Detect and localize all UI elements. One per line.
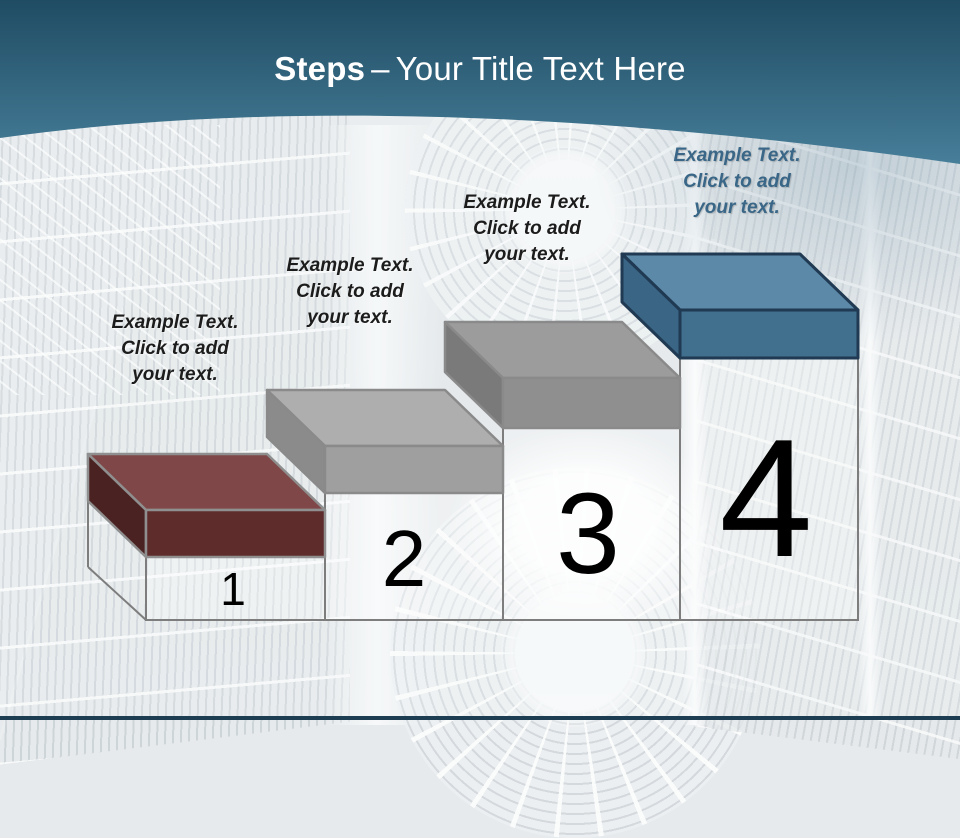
step-4-lid-front <box>680 310 858 358</box>
step-1-pedestal-diagonal-edge <box>88 567 146 620</box>
step-2-label-line: your text. <box>260 305 440 331</box>
step-3-label[interactable]: Example Text. Click to add your text. <box>437 190 617 268</box>
step-1-label-line: Example Text. <box>85 310 265 336</box>
step-3-label-line: your text. <box>437 242 617 268</box>
step-2-label[interactable]: Example Text. Click to add your text. <box>260 253 440 331</box>
step-3-label-line: Example Text. <box>437 190 617 216</box>
step-3-label-line: Click to add <box>437 216 617 242</box>
step-2-label-line: Example Text. <box>260 253 440 279</box>
step-1-group: 1 <box>88 454 325 620</box>
step-1-label-line: Click to add <box>85 336 265 362</box>
step-4-label-line: Click to add <box>647 169 827 195</box>
step-4-label-line: Example Text. <box>647 143 827 169</box>
step-1-label[interactable]: Example Text. Click to add your text. <box>85 310 265 388</box>
footer-bar <box>0 716 960 720</box>
step-4-number: 4 <box>719 404 812 592</box>
step-4-label[interactable]: Example Text. Click to add your text. <box>647 143 827 221</box>
step-3-number: 3 <box>556 470 620 598</box>
step-1-lid-front <box>146 510 325 557</box>
step-1-label-line: your text. <box>85 362 265 388</box>
step-2-label-line: Click to add <box>260 279 440 305</box>
step-3-lid-front <box>503 378 680 428</box>
step-2-lid-front <box>325 446 503 493</box>
step-4-label-line: your text. <box>647 195 827 221</box>
step-2-number: 2 <box>382 514 427 603</box>
step-1-number: 1 <box>220 563 246 615</box>
